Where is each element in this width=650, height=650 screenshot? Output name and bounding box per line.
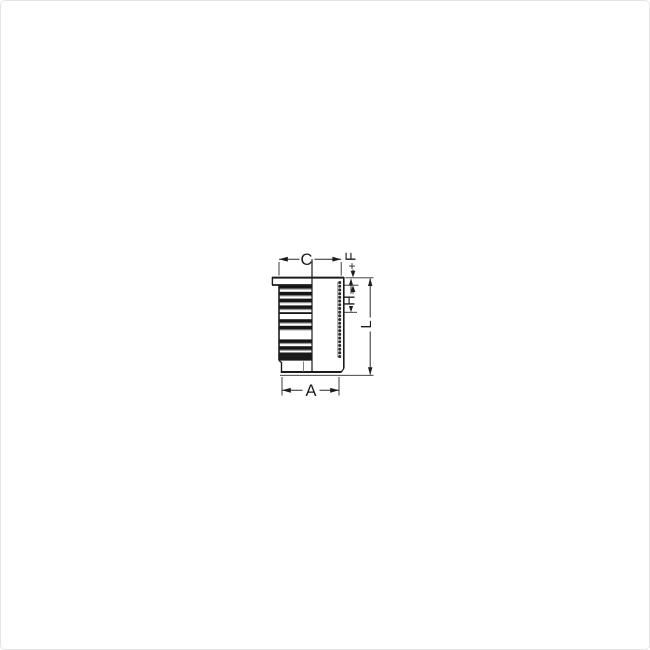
product-image-frame: C F + H L A	[0, 0, 650, 650]
cylinder-liner-technical-drawing: C F + H L A	[1, 1, 650, 650]
dim-label-c: C	[301, 251, 313, 269]
rib-gap	[279, 333, 312, 339]
rib-stripes	[279, 285, 312, 360]
dim-label-h: H	[343, 295, 359, 305]
dim-label-a: A	[305, 382, 316, 400]
rib-bottom-band	[279, 353, 312, 360]
rib-gap	[279, 314, 312, 319]
rib-section	[279, 285, 312, 360]
drawing-background	[1, 1, 650, 650]
dim-label-l: L	[359, 320, 375, 328]
